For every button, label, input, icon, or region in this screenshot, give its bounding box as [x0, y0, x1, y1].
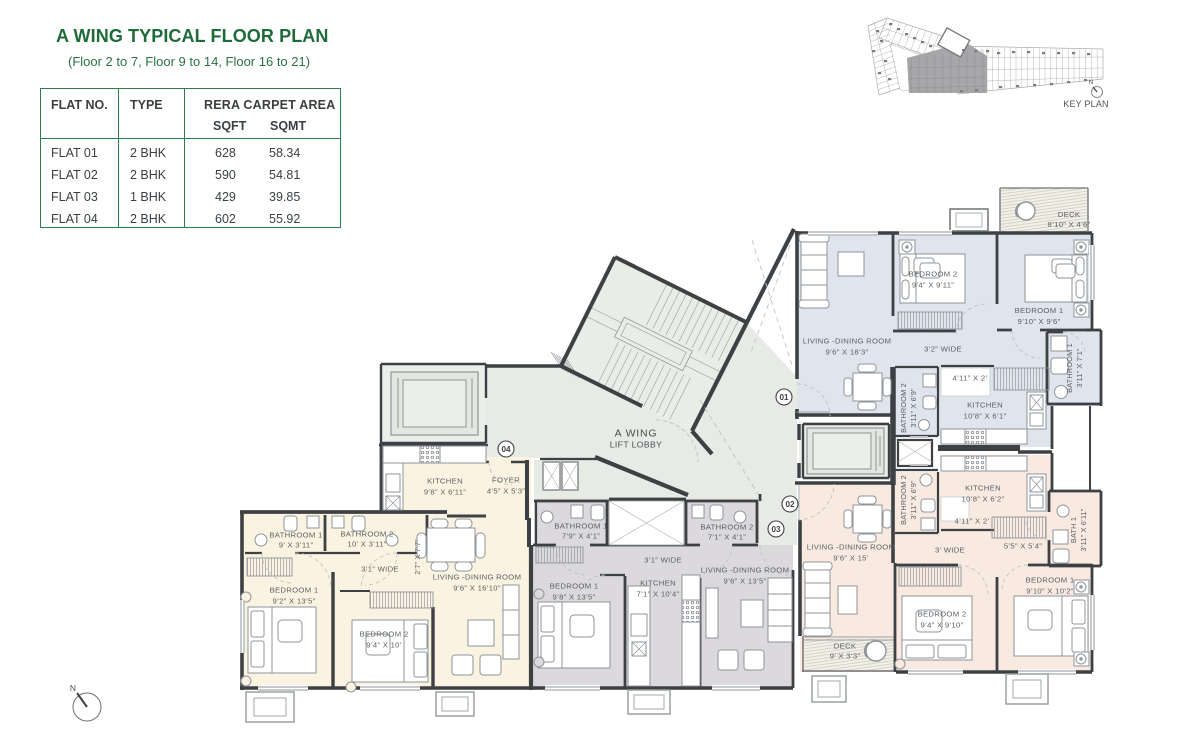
svg-text:3’1” WIDE: 3’1” WIDE: [361, 565, 399, 574]
svg-text:4’11” X 2’: 4’11” X 2’: [953, 374, 988, 383]
svg-text:BEDROOM 1: BEDROOM 1: [1026, 576, 1075, 585]
svg-text:3’11” X 6’11”: 3’11” X 6’11”: [1079, 508, 1088, 551]
svg-text:KITCHEN: KITCHEN: [427, 477, 463, 486]
svg-text:KEY PLAN: KEY PLAN: [1063, 99, 1108, 109]
svg-text:04: 04: [501, 445, 511, 454]
svg-text:3’11” X 6’9”: 3’11” X 6’9”: [909, 388, 918, 428]
svg-text:03: 03: [771, 525, 781, 534]
svg-text:BEDROOM 1: BEDROOM 1: [550, 582, 599, 591]
svg-text:BATHROOM 2: BATHROOM 2: [340, 530, 393, 539]
svg-text:9’10” X 10’2”: 9’10” X 10’2”: [1026, 587, 1074, 596]
svg-text:8’10” X 4’6”: 8’10” X 4’6”: [1048, 220, 1091, 229]
svg-text:9’6” X 16’10”: 9’6” X 16’10”: [453, 584, 501, 593]
svg-text:9’6” X 15’: 9’6” X 15’: [833, 554, 868, 563]
svg-text:9’4” X 9’10”: 9’4” X 9’10”: [921, 621, 964, 630]
svg-text:LIVING -DINING ROOM: LIVING -DINING ROOM: [803, 337, 892, 346]
svg-text:LIVING -DINING ROOM: LIVING -DINING ROOM: [433, 573, 522, 582]
svg-text:9’6” X 13’5”: 9’6” X 13’5”: [724, 577, 767, 586]
svg-text:BEDROOM 1: BEDROOM 1: [270, 586, 319, 595]
svg-text:7’1” X 4’1”: 7’1” X 4’1”: [708, 533, 746, 542]
svg-text:LIVING -DINING ROOM: LIVING -DINING ROOM: [701, 566, 790, 575]
svg-text:KITCHEN: KITCHEN: [967, 401, 1003, 410]
svg-text:9’8” X 13’5”: 9’8” X 13’5”: [553, 593, 596, 602]
svg-text:2’7” X 7’7”: 2’7” X 7’7”: [413, 539, 422, 575]
svg-text:9’6” X 18’3”: 9’6” X 18’3”: [826, 348, 869, 357]
svg-text:7’9” X 4’1”: 7’9” X 4’1”: [562, 532, 600, 541]
svg-text:KITCHEN: KITCHEN: [965, 484, 1001, 493]
svg-text:9’ X 3’3”: 9’ X 3’3”: [830, 652, 861, 661]
svg-text:BATHROOM 2: BATHROOM 2: [700, 523, 753, 532]
svg-text:BEDROOM 2: BEDROOM 2: [918, 610, 967, 619]
svg-text:4’5” X 5’3”: 4’5” X 5’3”: [487, 487, 525, 496]
svg-text:FOYER: FOYER: [492, 476, 520, 485]
svg-text:3’11” X 6’9”: 3’11” X 6’9”: [909, 480, 918, 520]
svg-text:DECK: DECK: [1058, 210, 1081, 219]
svg-text:10’8” X 6’2”: 10’8” X 6’2”: [962, 495, 1005, 504]
svg-text:BEDROOM 2: BEDROOM 2: [360, 630, 409, 639]
svg-text:BATH 1: BATH 1: [1069, 517, 1078, 543]
svg-text:N: N: [1089, 79, 1094, 86]
svg-text:9’2” X 13’5”: 9’2” X 13’5”: [273, 597, 316, 606]
svg-text:LIFT LOBBY: LIFT LOBBY: [610, 440, 663, 450]
svg-text:3’1” WIDE: 3’1” WIDE: [644, 556, 682, 565]
svg-text:BATHROOM 1: BATHROOM 1: [269, 531, 322, 540]
svg-text:02: 02: [785, 500, 795, 509]
svg-text:3’11” X 7’1”: 3’11” X 7’1”: [1075, 348, 1084, 388]
svg-text:N: N: [70, 683, 76, 693]
svg-text:9’8” X 6’11”: 9’8” X 6’11”: [424, 488, 466, 497]
svg-text:3’2” WIDE: 3’2” WIDE: [924, 345, 962, 354]
svg-text:BATHROOM 2: BATHROOM 2: [899, 383, 908, 433]
svg-text:9’4” X 9’11”: 9’4” X 9’11”: [912, 281, 954, 290]
svg-text:BATHROOM 2: BATHROOM 2: [899, 475, 908, 525]
svg-text:KITCHEN: KITCHEN: [640, 579, 676, 588]
svg-text:3’ WIDE: 3’ WIDE: [935, 546, 965, 555]
svg-text:9’ X 3’11”: 9’ X 3’11”: [279, 541, 314, 550]
svg-text:10’ X 3’11”: 10’ X 3’11”: [347, 540, 386, 549]
svg-text:01: 01: [779, 393, 789, 402]
svg-text:LIVING -DINING ROOM: LIVING -DINING ROOM: [807, 543, 896, 552]
svg-text:BEDROOM 2: BEDROOM 2: [909, 270, 958, 279]
svg-text:BEDROOM 1: BEDROOM 1: [1015, 306, 1064, 315]
svg-text:9’10” X 9’6”: 9’10” X 9’6”: [1018, 317, 1061, 326]
svg-text:BATHROOM 1: BATHROOM 1: [554, 522, 607, 531]
svg-text:5’5” X 5’4”: 5’5” X 5’4”: [1004, 542, 1042, 551]
svg-text:4’11” X 2’: 4’11” X 2’: [955, 517, 990, 526]
svg-text:A WING: A WING: [615, 428, 658, 440]
svg-text:7’1” X 10’4”: 7’1” X 10’4”: [637, 590, 680, 599]
svg-text:9’4” X 10’: 9’4” X 10’: [366, 641, 401, 650]
svg-text:10’8” X 6’1”: 10’8” X 6’1”: [964, 412, 1007, 421]
svg-text:BATHROOM 1: BATHROOM 1: [1065, 343, 1074, 393]
svg-text:DECK: DECK: [834, 642, 857, 651]
